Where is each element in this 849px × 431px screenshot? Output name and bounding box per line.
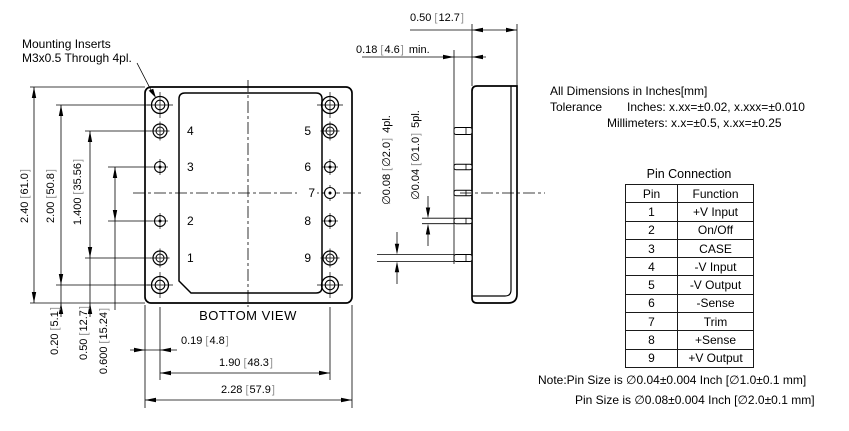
dim-value-mm: 12.7 <box>78 306 90 336</box>
tolerance-millimeters: Millimeters: x.x=±0.5, x.xx=±0.25 <box>607 116 782 130</box>
cell-pin: 2 <box>626 221 678 239</box>
pin-circle-large <box>321 249 340 268</box>
dim-value-in: 0.18 <box>356 44 377 56</box>
pin-circle-large <box>151 249 170 268</box>
cell-function: CASE <box>678 239 754 257</box>
cell-pin: 7 <box>626 313 678 331</box>
dim-edge-to-pin: 0.194.8 <box>181 335 229 347</box>
cell-pin: 8 <box>626 331 678 349</box>
cell-pin: 4 <box>626 258 678 276</box>
dim-value-mm: 12.7 <box>434 12 464 24</box>
pin-table-title: Pin Connection <box>625 167 753 181</box>
pin-number-9: 9 <box>295 251 311 265</box>
bottom-view-outline <box>145 87 352 303</box>
dim-width-overall: 2.2857.9 <box>203 384 293 396</box>
dim-value-in: 2.00 <box>45 202 57 223</box>
table-header-row: Pin Function <box>626 185 754 203</box>
side-view-pins <box>454 128 472 262</box>
dim-value-mm: 4.8 <box>205 335 228 347</box>
dim-value-in: 0.50 <box>78 339 90 360</box>
pin-number-5: 5 <box>295 124 311 138</box>
table-row: 7Trim <box>626 313 754 331</box>
tolerance-label: Tolerance <box>550 100 602 114</box>
table-row: 9+V Output <box>626 349 754 367</box>
table-row: 6-Sense <box>626 294 754 312</box>
dim-value-mm: 48.3 <box>243 357 273 369</box>
dim-value-in: ∅0.04 <box>410 169 422 200</box>
pin-number-4: 4 <box>187 124 194 138</box>
dim-pin-span: 1.9048.3 <box>201 357 291 369</box>
dim-suffix: min. <box>409 44 430 56</box>
mechanical-drawing-page: Mounting Inserts M3x0.5 Through 4pl. 4 3… <box>0 0 849 431</box>
dim-value-mm: 4.6 <box>380 44 403 56</box>
dim-value-in: 0.50 <box>410 12 431 24</box>
dim-value-mm: 61.0 <box>19 169 31 199</box>
table-row: 4-V Input <box>626 258 754 276</box>
cell-pin: 6 <box>626 294 678 312</box>
dim-case-depth: 0.5012.7 <box>410 12 464 24</box>
mounting-insert <box>147 272 173 298</box>
cell-function: On/Off <box>678 221 754 239</box>
pin-number-3: 3 <box>187 160 194 174</box>
cell-pin: 1 <box>626 203 678 221</box>
tolerance-line1: All Dimensions in Inches[mm] <box>550 84 707 98</box>
table-row: 3CASE <box>626 239 754 257</box>
dim-suffix: 5pl. <box>410 110 422 128</box>
table-row: 8+Sense <box>626 331 754 349</box>
dim-value-in: 2.28 <box>221 384 242 396</box>
side-view-outline <box>472 86 517 303</box>
pin-circle-small <box>152 159 168 175</box>
dim-value-in: 0.20 <box>49 334 61 355</box>
mounting-insert <box>147 92 173 118</box>
table-row: 5-V Output <box>626 276 754 294</box>
column-header-pin: Pin <box>626 185 678 203</box>
pin-circle-small <box>152 213 168 229</box>
dim-value-in: 1.400 <box>72 198 84 226</box>
cell-pin: 3 <box>626 239 678 257</box>
dim-height-overall: 2.4061.0 <box>19 169 31 223</box>
cell-function: -Sense <box>678 294 754 312</box>
dim-value-mm: ∅2.0 <box>381 138 393 171</box>
dim-value-in: 1.90 <box>219 357 240 369</box>
bottom-view-label: BOTTOM VIEW <box>190 308 306 323</box>
dim-pin-dia-small: ∅0.04∅1.05pl. <box>410 110 422 200</box>
column-header-function: Function <box>678 185 754 203</box>
dim-bottom-to-pin: 0.5012.7 <box>78 306 90 360</box>
pin-number-6: 6 <box>295 160 311 174</box>
pin-number-2: 2 <box>187 214 194 228</box>
dim-value-in: 0.19 <box>181 335 202 347</box>
pin-number-8: 8 <box>295 214 311 228</box>
pin-number-7: 7 <box>297 186 317 200</box>
dim-height-pins-outer: 1.40035.56 <box>72 159 84 225</box>
dim-value-in: 0.600 <box>98 347 110 375</box>
dim-bottom-to-insert: 0.205.1 <box>49 307 61 355</box>
pin-circle-large <box>321 122 340 141</box>
table-row: 1+V Input <box>626 203 754 221</box>
dim-pin-dia-large: ∅0.08∅2.04pl. <box>381 115 393 205</box>
cell-function: +V Input <box>678 203 754 221</box>
cell-pin: 9 <box>626 349 678 367</box>
dim-value-mm: 15.24 <box>98 308 110 344</box>
pin-connection-table: Pin Function 1+V Input 2On/Off 3CASE 4-V… <box>625 184 754 368</box>
note-line1: Note:Pin Size is ∅0.04±0.004 Inch [∅1.0±… <box>538 373 806 387</box>
pin-circle-large <box>151 122 170 141</box>
dim-value-mm: 5.1 <box>49 307 61 330</box>
leader-line <box>137 63 156 98</box>
cell-function: -V Input <box>678 258 754 276</box>
dim-value-mm: ∅1.0 <box>410 133 422 166</box>
note-line2: Pin Size is ∅0.08±0.004 Inch [∅2.0±0.1 m… <box>575 393 815 407</box>
pin-circle-small <box>322 185 338 201</box>
mounting-note-line1: Mounting Inserts <box>22 37 132 51</box>
dim-suffix: 4pl. <box>381 115 393 133</box>
pin-number-1: 1 <box>187 251 194 265</box>
dim-value-mm: 57.9 <box>245 384 275 396</box>
dim-value-in: ∅0.08 <box>381 174 393 205</box>
cell-function: -V Output <box>678 276 754 294</box>
pin-circle-small <box>322 213 338 229</box>
tolerance-inches: Inches: x.xx=±0.02, x.xxx=±0.010 <box>627 100 805 114</box>
dim-value-in: 2.40 <box>19 202 31 223</box>
table-row: 2On/Off <box>626 221 754 239</box>
cell-function: +Sense <box>678 331 754 349</box>
dim-pin-length: 0.184.6min. <box>356 44 430 56</box>
dim-value-mm: 35.56 <box>72 159 84 195</box>
mounting-insert <box>317 272 343 298</box>
dim-height-pins-inner: 0.60015.24 <box>98 308 110 374</box>
cell-pin: 5 <box>626 276 678 294</box>
pin-circle-small <box>322 159 338 175</box>
dim-height-inserts: 2.0050.8 <box>45 169 57 223</box>
cell-function: +V Output <box>678 349 754 367</box>
mounting-note: Mounting Inserts M3x0.5 Through 4pl. <box>22 37 132 65</box>
dim-value-mm: 50.8 <box>45 169 57 199</box>
cell-function: Trim <box>678 313 754 331</box>
mounting-note-line2: M3x0.5 Through 4pl. <box>22 51 132 65</box>
